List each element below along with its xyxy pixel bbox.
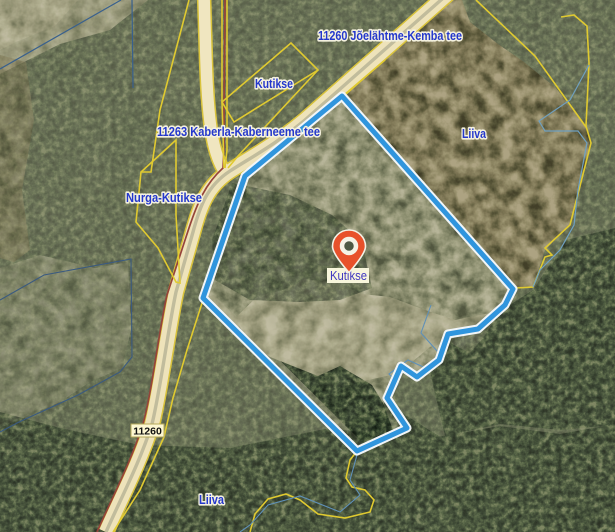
svg-text:Nurga-Kutikse: Nurga-Kutikse <box>126 190 202 205</box>
svg-text:Liiva: Liiva <box>462 126 487 141</box>
svg-text:Liiva: Liiva <box>199 492 225 507</box>
svg-text:11260: 11260 <box>133 426 162 438</box>
svg-text:11260 Jõelähtme-Kemba tee: 11260 Jõelähtme-Kemba tee <box>318 28 462 43</box>
svg-text:11263 Kaberla-Kaberneeme tee: 11263 Kaberla-Kaberneeme tee <box>157 124 320 139</box>
svg-text:Kutikse: Kutikse <box>255 76 293 91</box>
